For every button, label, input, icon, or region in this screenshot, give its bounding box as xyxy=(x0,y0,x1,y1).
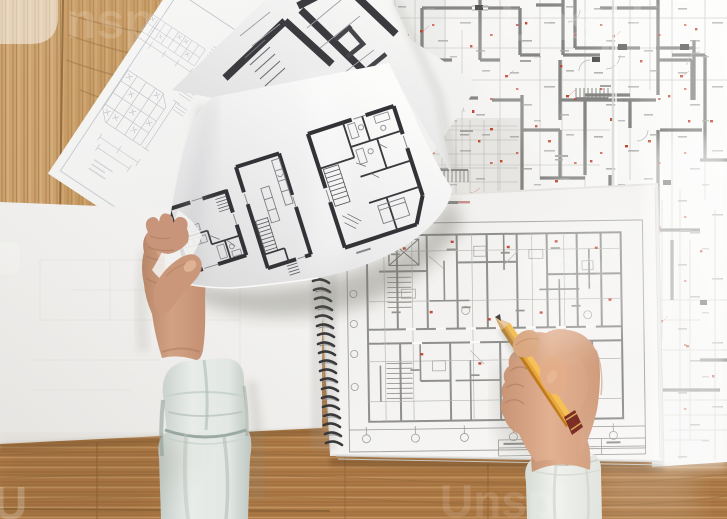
svg-text:U: U xyxy=(0,477,27,519)
svg-text:nsp: nsp xyxy=(520,241,605,294)
svg-text:nspl: nspl xyxy=(66,0,169,49)
svg-text:Unspl: Unspl xyxy=(500,0,644,52)
svg-text:Unspl: Unspl xyxy=(440,475,568,519)
